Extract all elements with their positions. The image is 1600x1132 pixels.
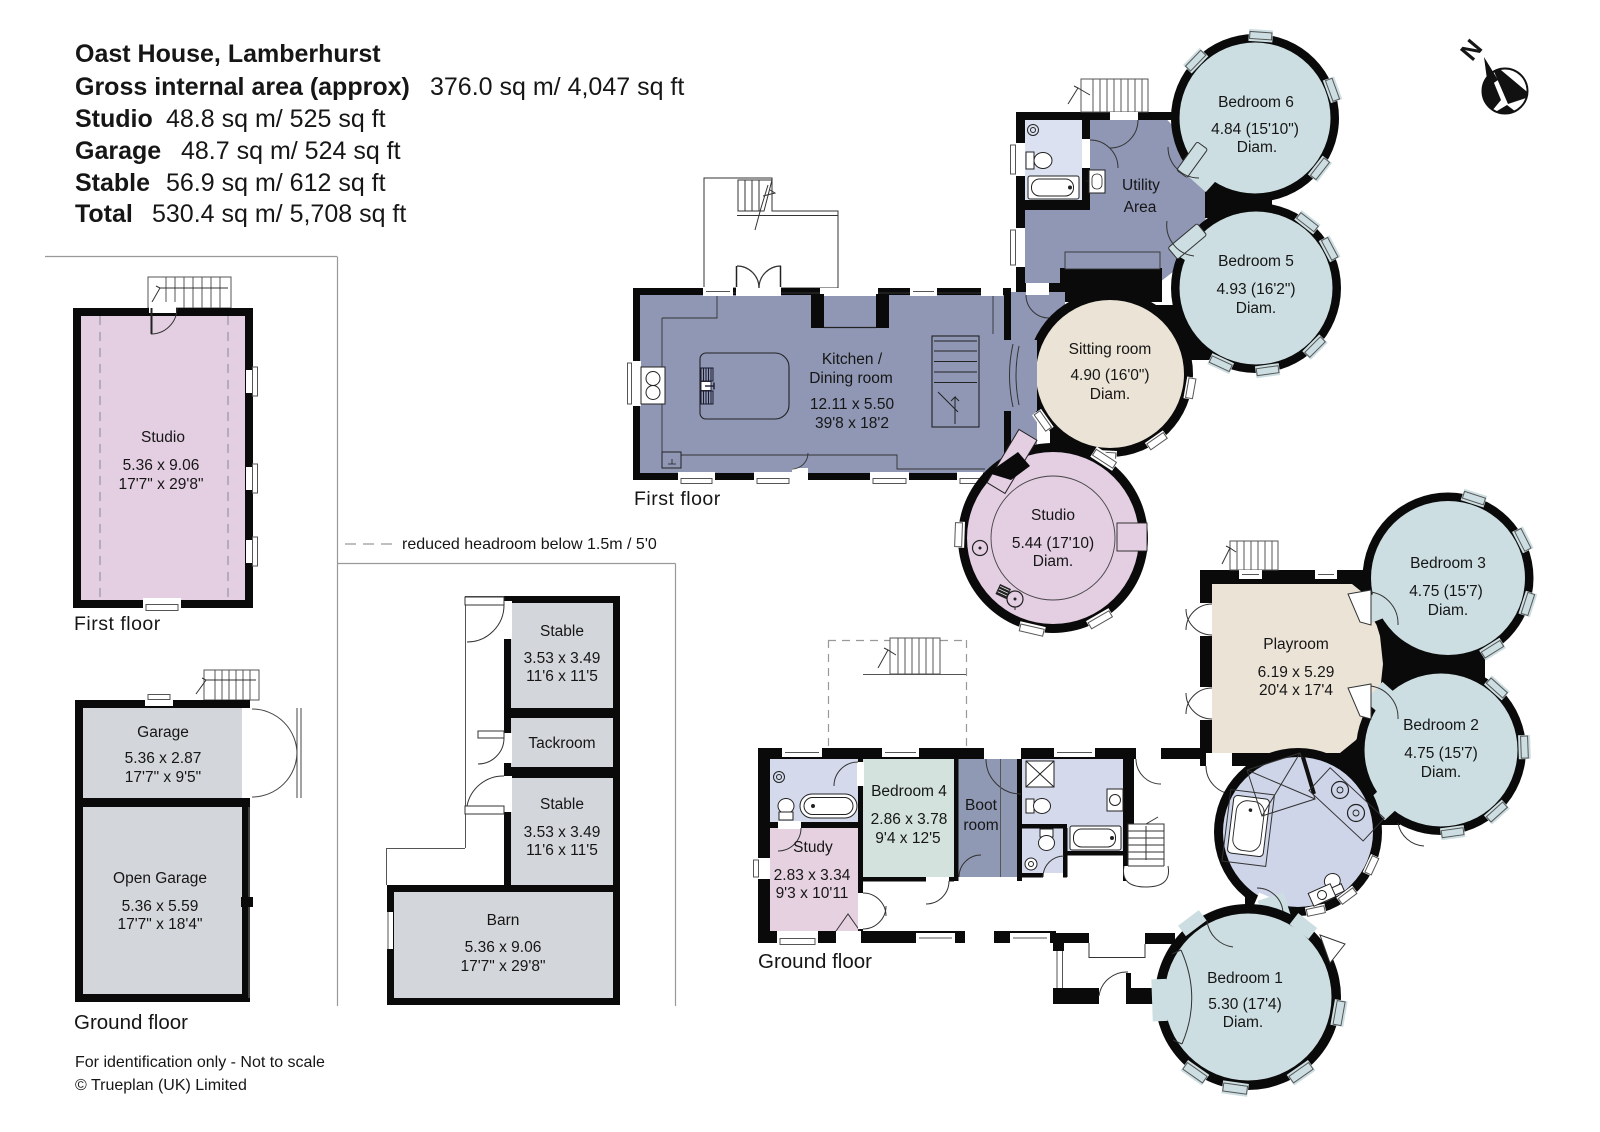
svg-text:Bedroom 5: Bedroom 5 (1218, 253, 1294, 270)
svg-text:Area: Area (1124, 199, 1157, 216)
svg-text:48.7 sq m/ 524 sq ft: 48.7 sq m/ 524 sq ft (181, 137, 401, 165)
svg-text:5.30 (17'4): 5.30 (17'4) (1208, 996, 1282, 1013)
svg-text:First floor: First floor (74, 613, 161, 635)
svg-text:17'7" x 18'4": 17'7" x 18'4" (117, 916, 202, 933)
svg-text:room: room (963, 817, 998, 834)
svg-text:Gross internal area (approx): Gross internal area (approx) (75, 73, 410, 101)
svg-text:11'6 x 11'5: 11'6 x 11'5 (526, 842, 598, 859)
svg-text:Stable: Stable (75, 169, 150, 197)
svg-text:Oast House, Lamberhurst: Oast House, Lamberhurst (75, 40, 381, 68)
svg-text:12.11 x 5.50: 12.11 x 5.50 (810, 396, 895, 413)
svg-text:Stable: Stable (540, 623, 584, 640)
svg-text:4.90 (16'0"): 4.90 (16'0") (1070, 367, 1149, 384)
svg-text:5.36 x 2.87: 5.36 x 2.87 (125, 750, 202, 767)
svg-text:Stable: Stable (540, 796, 584, 813)
svg-text:2.86 x 3.78: 2.86 x 3.78 (871, 811, 948, 828)
svg-text:20'4 x 17'4: 20'4 x 17'4 (1259, 682, 1333, 699)
svg-text:N: N (1455, 34, 1488, 66)
svg-text:Study: Study (793, 839, 833, 856)
svg-text:4.84 (15'10"): 4.84 (15'10") (1211, 121, 1299, 138)
svg-text:Tackroom: Tackroom (528, 735, 595, 752)
svg-text:6.19 x 5.29: 6.19 x 5.29 (1258, 664, 1335, 681)
svg-text:Studio: Studio (75, 105, 153, 133)
svg-text:9'4 x 12'5: 9'4 x 12'5 (875, 830, 940, 847)
svg-text:3.53 x 3.49: 3.53 x 3.49 (524, 650, 601, 667)
svg-text:Total: Total (75, 200, 133, 228)
svg-text:Bedroom 1: Bedroom 1 (1207, 970, 1283, 987)
svg-text:39'8 x 18'2: 39'8 x 18'2 (815, 415, 889, 432)
svg-text:5.36 x 9.06: 5.36 x 9.06 (465, 939, 542, 956)
svg-text:Garage: Garage (75, 137, 161, 165)
svg-text:Bedroom 3: Bedroom 3 (1410, 555, 1486, 572)
svg-text:11'6 x 11'5: 11'6 x 11'5 (526, 668, 598, 685)
svg-text:Sitting room: Sitting room (1069, 341, 1152, 358)
svg-text:56.9 sq m/ 612 sq ft: 56.9 sq m/ 612 sq ft (166, 169, 386, 197)
svg-text:Open Garage: Open Garage (113, 870, 207, 887)
svg-text:17'7" x 29'8": 17'7" x 29'8" (118, 476, 203, 493)
svg-text:17'7" x 29'8": 17'7" x 29'8" (460, 958, 545, 975)
svg-text:5.36 x 5.59: 5.36 x 5.59 (122, 898, 199, 915)
svg-text:530.4 sq m/ 5,708 sq ft: 530.4 sq m/ 5,708 sq ft (152, 200, 406, 228)
svg-text:Diam.: Diam. (1090, 386, 1130, 403)
svg-text:Bedroom 4: Bedroom 4 (871, 783, 947, 800)
svg-text:5.44 (17'10): 5.44 (17'10) (1012, 535, 1094, 552)
svg-text:Kitchen /: Kitchen / (822, 351, 883, 368)
svg-text:Diam.: Diam. (1421, 764, 1461, 781)
svg-text:First floor: First floor (634, 488, 721, 510)
svg-text:Ground floor: Ground floor (758, 950, 872, 973)
svg-text:376.0 sq m/ 4,047 sq ft: 376.0 sq m/ 4,047 sq ft (430, 73, 684, 101)
svg-text:Dining room: Dining room (809, 370, 893, 387)
svg-text:Boot: Boot (965, 797, 998, 814)
svg-text:For identification only - Not: For identification only - Not to scale (75, 1054, 325, 1071)
svg-text:Diam.: Diam. (1237, 139, 1277, 156)
svg-text:2.83 x 3.34: 2.83 x 3.34 (774, 867, 851, 884)
svg-text:Playroom: Playroom (1263, 636, 1328, 653)
svg-text:Barn: Barn (487, 912, 520, 929)
svg-text:Studio: Studio (141, 429, 185, 446)
svg-text:9'3 x 10'11: 9'3 x 10'11 (776, 885, 849, 902)
svg-text:Utility: Utility (1122, 177, 1160, 194)
svg-text:reduced headroom below 1.5m /: reduced headroom below 1.5m / 5'0 (402, 536, 657, 553)
svg-text:Diam.: Diam. (1236, 300, 1276, 317)
svg-text:4.75 (15'7): 4.75 (15'7) (1404, 745, 1478, 762)
svg-text:Diam.: Diam. (1033, 553, 1073, 570)
svg-text:Garage: Garage (137, 724, 189, 741)
svg-text:17'7" x 9'5": 17'7" x 9'5" (125, 769, 201, 786)
svg-text:© Trueplan (UK) Limited: © Trueplan (UK) Limited (75, 1077, 247, 1094)
svg-text:Bedroom 2: Bedroom 2 (1403, 717, 1479, 734)
svg-text:48.8 sq m/ 525 sq ft: 48.8 sq m/ 525 sq ft (166, 105, 386, 133)
svg-text:Diam.: Diam. (1223, 1014, 1263, 1031)
svg-text:Bedroom 6: Bedroom 6 (1218, 94, 1294, 111)
svg-text:4.75 (15'7): 4.75 (15'7) (1409, 583, 1483, 600)
svg-text:Studio: Studio (1031, 507, 1075, 524)
svg-text:4.93 (16'2"): 4.93 (16'2") (1216, 281, 1295, 298)
svg-text:5.36 x 9.06: 5.36 x 9.06 (123, 457, 200, 474)
svg-text:3.53 x 3.49: 3.53 x 3.49 (524, 824, 601, 841)
svg-text:Diam.: Diam. (1428, 602, 1468, 619)
svg-text:Ground floor: Ground floor (74, 1011, 188, 1034)
